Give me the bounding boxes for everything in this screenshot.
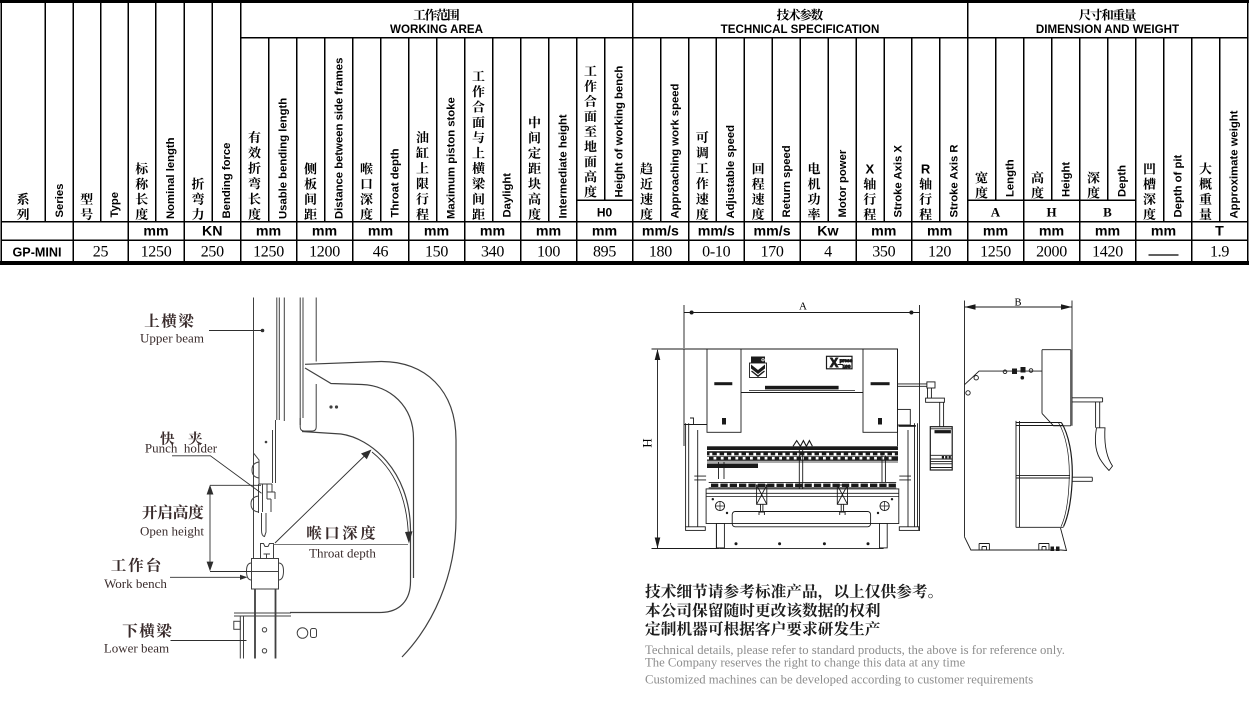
svg-text:Motor power: Motor power [837,149,849,217]
svg-text:Approaching work speed: Approaching work speed [669,83,681,218]
svg-text:Punch holder: Punch holder [145,440,218,455]
svg-text:Upper beam: Upper beam [140,331,204,346]
svg-text:X: X [865,161,874,176]
svg-text:T: T [1215,224,1224,240]
svg-text:Lower beam: Lower beam [104,640,169,655]
svg-text:350: 350 [872,244,895,261]
svg-text:Throat depth: Throat depth [309,546,376,561]
svg-text:120: 120 [928,244,951,261]
svg-text:Return speed: Return speed [781,145,793,217]
svg-text:mm: mm [927,224,952,240]
svg-text:TECHNICAL SPECIFICATION: TECHNICAL SPECIFICATION [721,23,880,36]
svg-text:Maximum piston stoke: Maximum piston stoke [446,97,458,219]
svg-text:1250: 1250 [141,244,172,261]
svg-text:mm: mm [368,224,393,240]
svg-text:mm: mm [1039,224,1064,240]
svg-text:B: B [1014,297,1021,308]
svg-text:Nominal length: Nominal length [165,137,177,219]
svg-text:The Company reserves the right: The Company reserves the right to change… [645,655,966,669]
svg-text:Daylight: Daylight [502,173,514,218]
svg-text:170: 170 [761,244,784,261]
svg-text:B: B [1103,205,1112,220]
svg-text:mm: mm [480,224,505,240]
svg-text:H0: H0 [597,206,613,220]
svg-text:mm/s: mm/s [642,224,679,240]
svg-text:mm: mm [536,224,561,240]
svg-text:Height: Height [1061,162,1073,197]
svg-text:R: R [921,161,931,176]
svg-text:46: 46 [373,244,389,261]
svg-text:Distance between side frames: Distance between side frames [334,58,346,219]
svg-text:KN: KN [202,224,223,240]
svg-text:150: 150 [425,244,448,261]
svg-text:mm: mm [592,224,617,240]
svg-text:25: 25 [93,244,109,261]
svg-text:1.9: 1.9 [1210,244,1229,261]
svg-text:1200: 1200 [309,244,340,261]
svg-text:mm: mm [871,224,896,240]
svg-text:Intermediate height: Intermediate height [558,114,570,218]
svg-text:mm: mm [256,224,281,240]
svg-text:Usable bending length: Usable bending length [278,98,290,219]
svg-text:340: 340 [481,244,504,261]
svg-text:A: A [799,301,807,313]
svg-text:mm/s: mm/s [754,224,791,240]
svg-text:1250: 1250 [980,244,1011,261]
svg-text:2000: 2000 [1036,244,1067,261]
svg-text:Series: Series [54,184,66,218]
svg-text:DIMENSION AND WEIGHT: DIMENSION AND WEIGHT [1036,23,1179,36]
svg-text:A: A [991,205,1001,220]
svg-text:Depth of pit: Depth of pit [1173,155,1185,218]
svg-text:X: X [830,356,839,370]
svg-text:press: press [840,358,853,364]
svg-text:250: 250 [201,244,224,261]
svg-text:mm: mm [424,224,449,240]
svg-text:mm: mm [312,224,337,240]
svg-text:Bending force: Bending force [221,143,233,219]
svg-text:mm: mm [1095,224,1120,240]
svg-text:WORKING AREA: WORKING AREA [390,23,484,36]
svg-text:4: 4 [824,244,832,261]
svg-text:0-10: 0-10 [702,244,730,261]
svg-text:Stroke Axis X: Stroke Axis X [893,145,905,218]
svg-text:Approximate weight: Approximate weight [1229,110,1241,218]
svg-text:Type: Type [109,192,121,218]
svg-text:895: 895 [593,244,616,261]
svg-text:mm/s: mm/s [698,224,735,240]
svg-text:H: H [640,438,655,447]
svg-text:Depth: Depth [1117,165,1129,197]
svg-text:100: 100 [842,364,850,370]
svg-text:H: H [1046,205,1056,220]
svg-text:Kw: Kw [817,224,839,240]
svg-text:Throat depth: Throat depth [390,148,402,217]
svg-text:180: 180 [649,244,672,261]
svg-text:Customized machines can be dev: Customized machines can be developed acc… [645,673,1033,687]
svg-text:Stroke Axis R: Stroke Axis R [949,144,961,217]
svg-text:Work bench: Work bench [104,576,167,591]
svg-text:mm: mm [1151,224,1176,240]
svg-text:GP-MINI: GP-MINI [13,246,62,260]
svg-text:Length: Length [1005,159,1017,197]
svg-text:Adjustable speed: Adjustable speed [725,125,737,219]
svg-text:1250: 1250 [253,244,284,261]
svg-text:mm: mm [983,224,1008,240]
svg-text:mm: mm [143,224,168,240]
svg-text:Height of working bench: Height of working bench [614,66,626,198]
svg-text:1420: 1420 [1092,244,1123,261]
svg-text:100: 100 [537,244,560,261]
svg-text:Open height: Open height [140,523,204,538]
